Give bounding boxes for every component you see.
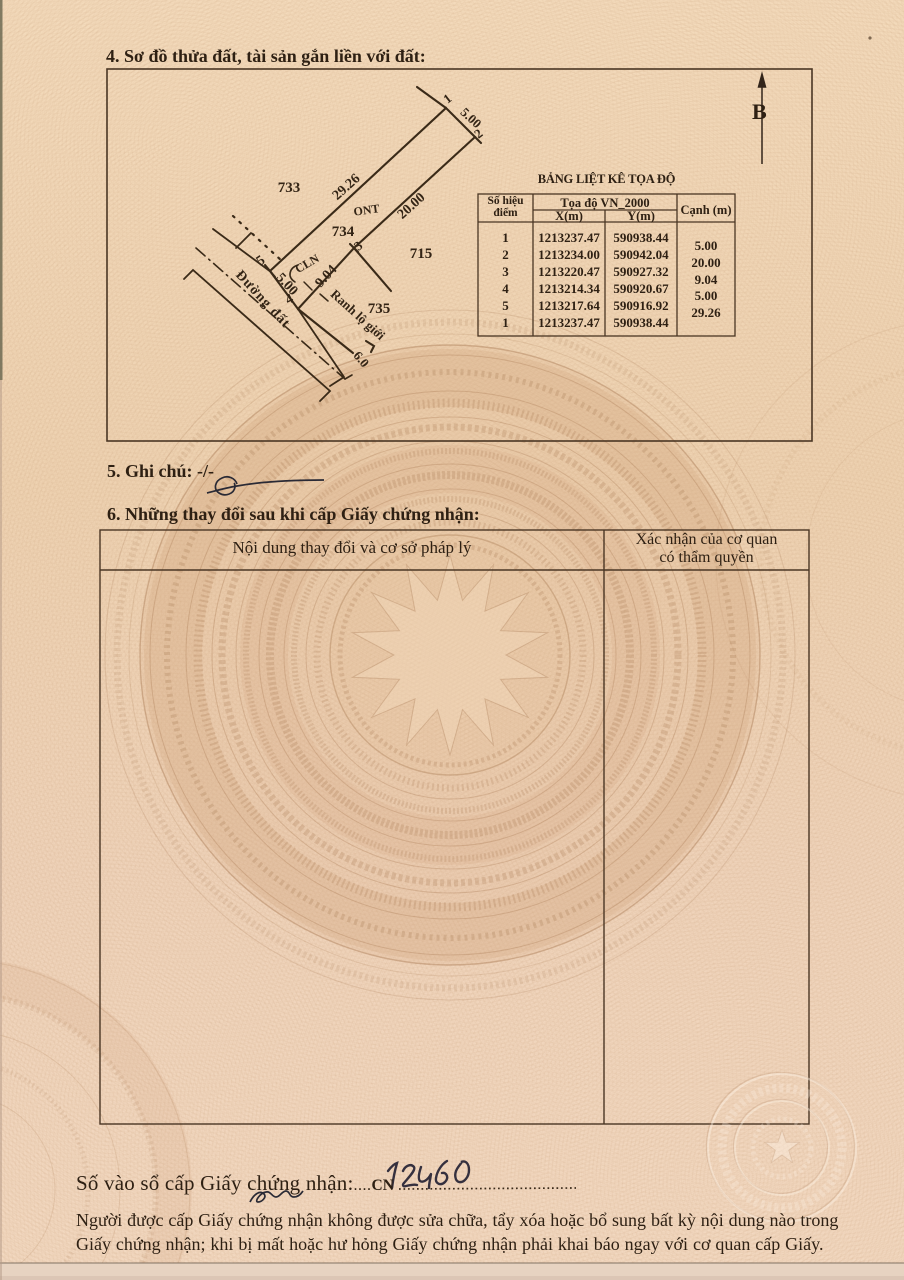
svg-text:733: 733: [278, 180, 301, 196]
svg-text:715: 715: [410, 246, 433, 262]
svg-text:ONT: ONT: [353, 201, 381, 218]
svg-text:20.00: 20.00: [395, 190, 428, 222]
svg-text:735: 735: [368, 301, 391, 317]
svg-text:734: 734: [332, 224, 355, 240]
svg-text:5.00: 5.00: [458, 104, 485, 130]
svg-text:CLN: CLN: [293, 251, 322, 276]
